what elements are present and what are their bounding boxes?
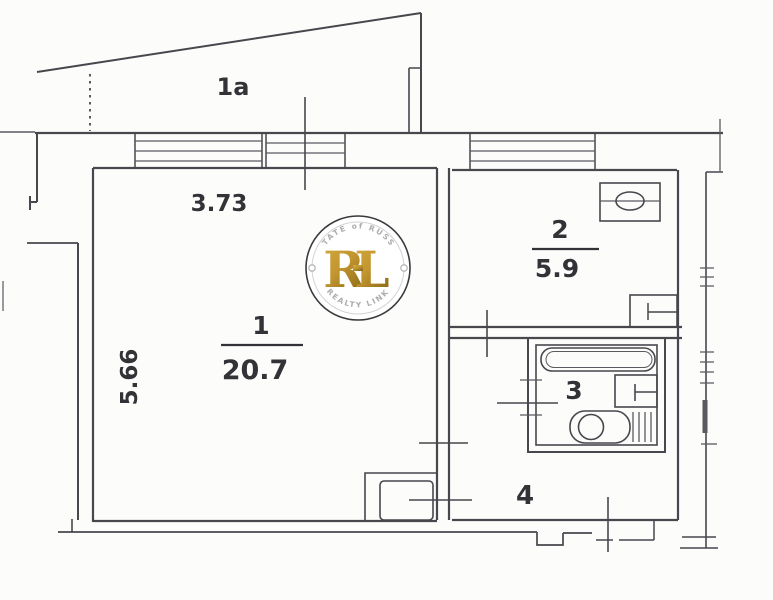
dimension-width-label: 3.73: [191, 191, 248, 217]
watermark-left-dot: [309, 265, 315, 271]
room-1-number: 1: [252, 311, 269, 340]
watermark-right-dot: [401, 265, 407, 271]
room-3-number: 3: [565, 376, 582, 405]
balcony-label: 1a: [217, 73, 250, 101]
closet: [365, 473, 437, 520]
stove: [600, 183, 660, 221]
room-1-area: 20.7: [222, 355, 289, 386]
room-2-number: 2: [551, 215, 568, 244]
room-2-area: 5.9: [535, 254, 579, 283]
windows: [93, 97, 677, 190]
floorplan-page: 1a 3.73 5.66 1 20.7 2 5.9 3 4 ESTATE of …: [0, 0, 773, 600]
bathroom-sink: [615, 375, 657, 407]
toilet: [570, 411, 651, 443]
watermark-logo: ESTATE of RUSSIA REALTY LINK R L: [0, 0, 410, 320]
room-4-number: 4: [516, 481, 534, 511]
exterior-walls: [0, 119, 723, 532]
entrance: [537, 497, 718, 552]
right-exterior-wall: [700, 172, 723, 548]
kitchen-fixtures: [600, 183, 677, 327]
watermark-monogram-dash: [353, 265, 363, 271]
kitchen-sink: [630, 295, 677, 327]
dimension-height-label: 5.66: [117, 349, 143, 406]
floor-plan-svg: 1a 3.73 5.66 1 20.7 2 5.9 3 4 ESTATE of …: [0, 0, 773, 600]
